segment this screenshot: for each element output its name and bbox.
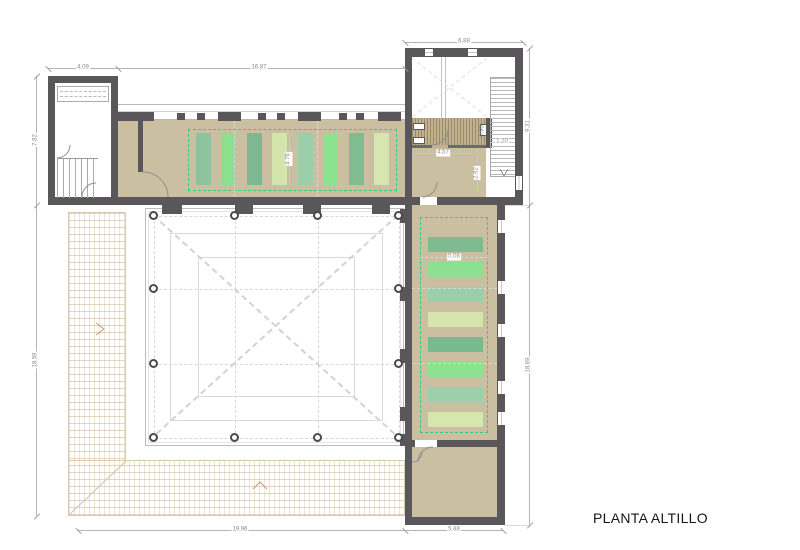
dim-tick	[402, 528, 408, 534]
column	[149, 284, 158, 293]
window	[498, 220, 505, 233]
dim-line-bottom	[78, 530, 503, 531]
window	[498, 412, 505, 425]
mat-stripe	[428, 412, 483, 427]
pilaster	[372, 205, 390, 214]
window	[425, 49, 433, 56]
mat-stripe	[428, 312, 483, 327]
mat-stripe	[428, 387, 483, 402]
column	[230, 211, 239, 220]
stair-tower-a	[57, 158, 98, 198]
pilaster	[162, 205, 182, 214]
dim-tick	[527, 45, 533, 51]
column	[313, 433, 322, 442]
mat-stripe	[196, 133, 211, 185]
courtyard-grid-line	[399, 216, 400, 438]
floor-plan-drawing: 4.09 16.87 6.88 7.82 18.59 9.31 18.69 19…	[0, 0, 800, 550]
wall-bath-partition	[412, 145, 486, 148]
dim-north-wing-width: 16.87	[250, 65, 267, 72]
south-room-floor	[412, 447, 498, 517]
mat-stripe	[428, 262, 483, 277]
dim-fixture-width: 0.90	[480, 124, 487, 138]
wall-tower-a-bottom	[48, 197, 118, 205]
north-mat-stripes	[196, 133, 389, 185]
dim-tower-b-width: 6.88	[457, 39, 471, 46]
pilaster	[298, 112, 321, 121]
dim-tick	[115, 66, 121, 72]
grid-extension	[317, 121, 318, 197]
column	[394, 433, 403, 442]
dim-tick	[520, 40, 526, 46]
dim-right-total-height: 18.69	[526, 356, 533, 373]
bath-fixture	[413, 137, 425, 144]
pilaster	[118, 112, 131, 121]
window-mullion	[197, 113, 205, 120]
column	[230, 433, 239, 442]
window	[498, 324, 505, 337]
column	[313, 211, 322, 220]
east-mat-stripes	[428, 237, 483, 427]
dim-bath-room-depth: 2.92	[474, 166, 481, 180]
pilaster	[400, 407, 409, 421]
dim-north-mat-depth: 4.76	[286, 152, 293, 166]
dim-south-room-width: 5.88	[447, 527, 461, 534]
dim-tower-a-width: 4.09	[76, 65, 90, 72]
dim-left-total-height: 18.59	[33, 351, 40, 368]
wall-tower-b-top	[405, 48, 523, 57]
window	[498, 281, 505, 294]
void-cross	[412, 58, 487, 117]
dim-tick	[45, 66, 51, 72]
wall-south-room-top	[437, 440, 505, 447]
wall-south-room-left	[405, 447, 412, 525]
terrace-bottom-band	[68, 460, 405, 516]
window-mullion	[339, 113, 347, 120]
dim-bath-width: 4.57	[436, 150, 450, 157]
dim-tick	[34, 513, 40, 519]
dim-tick	[34, 202, 40, 208]
window	[468, 49, 477, 56]
dim-extension-line	[505, 205, 529, 206]
courtyard-grid-line	[154, 216, 155, 438]
window-mullion	[356, 113, 364, 120]
column	[149, 433, 158, 442]
dim-terrace-width: 19.96	[231, 527, 248, 534]
void-edge-line	[441, 57, 442, 118]
mat-stripe	[428, 337, 483, 352]
dim-east-mat-width: 5.08	[447, 254, 461, 261]
wall-north-wing-bottom	[118, 197, 412, 205]
courtyard	[145, 208, 404, 446]
window-mullion	[177, 113, 185, 120]
column	[394, 211, 403, 220]
dim-stair-width: 1.20	[495, 139, 509, 146]
door-opening	[432, 145, 448, 148]
window	[516, 176, 522, 190]
window	[498, 381, 505, 394]
grid-extension	[412, 288, 497, 289]
window-mullion	[258, 113, 266, 120]
column	[394, 284, 403, 293]
mat-stripe	[247, 133, 262, 185]
column	[149, 359, 158, 368]
wall-corner-block	[405, 440, 415, 447]
wall-tower-a-top	[48, 76, 118, 83]
dim-tick	[75, 528, 81, 534]
mat-stripe	[428, 237, 483, 252]
grid-extension	[412, 363, 497, 364]
mat-stripe	[323, 133, 338, 185]
courtyard-grid-line	[154, 438, 399, 439]
wall-tower-a-left	[48, 76, 55, 205]
drawing-title: PLANTA ALTILLO	[593, 510, 708, 526]
mat-stripe	[428, 287, 483, 302]
dim-extension-line	[505, 525, 529, 526]
pilaster	[218, 112, 241, 121]
dim-tower-a-height: 7.82	[33, 133, 40, 147]
mat-stripe	[298, 133, 313, 185]
mat-stripe	[374, 133, 389, 185]
door-opening	[420, 197, 437, 205]
wall-tower-a-right	[111, 76, 118, 205]
window-mullion	[277, 113, 285, 120]
facade-glass-line	[118, 111, 405, 112]
dim-tower-b-height: 9.31	[526, 119, 533, 133]
column	[149, 211, 158, 220]
courtyard-grid-line	[154, 216, 399, 217]
dim-line-top	[48, 68, 405, 69]
dim-tick	[402, 40, 408, 46]
void-edge-line	[445, 57, 446, 118]
stair-tower-b	[490, 77, 515, 177]
door-swing	[57, 145, 70, 158]
wall-hall-partition	[138, 120, 143, 172]
facade-line	[118, 104, 405, 105]
wall-south-room-right	[497, 447, 505, 525]
mat-stripe	[428, 362, 483, 377]
pilaster	[378, 112, 401, 121]
wall-south-room-bottom	[405, 517, 505, 525]
column	[394, 359, 403, 368]
wardrobe	[57, 86, 109, 102]
bath-fixture	[413, 123, 425, 130]
mat-stripe	[349, 133, 364, 185]
roof-outline-inner	[198, 257, 355, 397]
dim-tick	[34, 73, 40, 79]
grid-extension	[234, 121, 235, 197]
dim-tick	[500, 528, 506, 534]
